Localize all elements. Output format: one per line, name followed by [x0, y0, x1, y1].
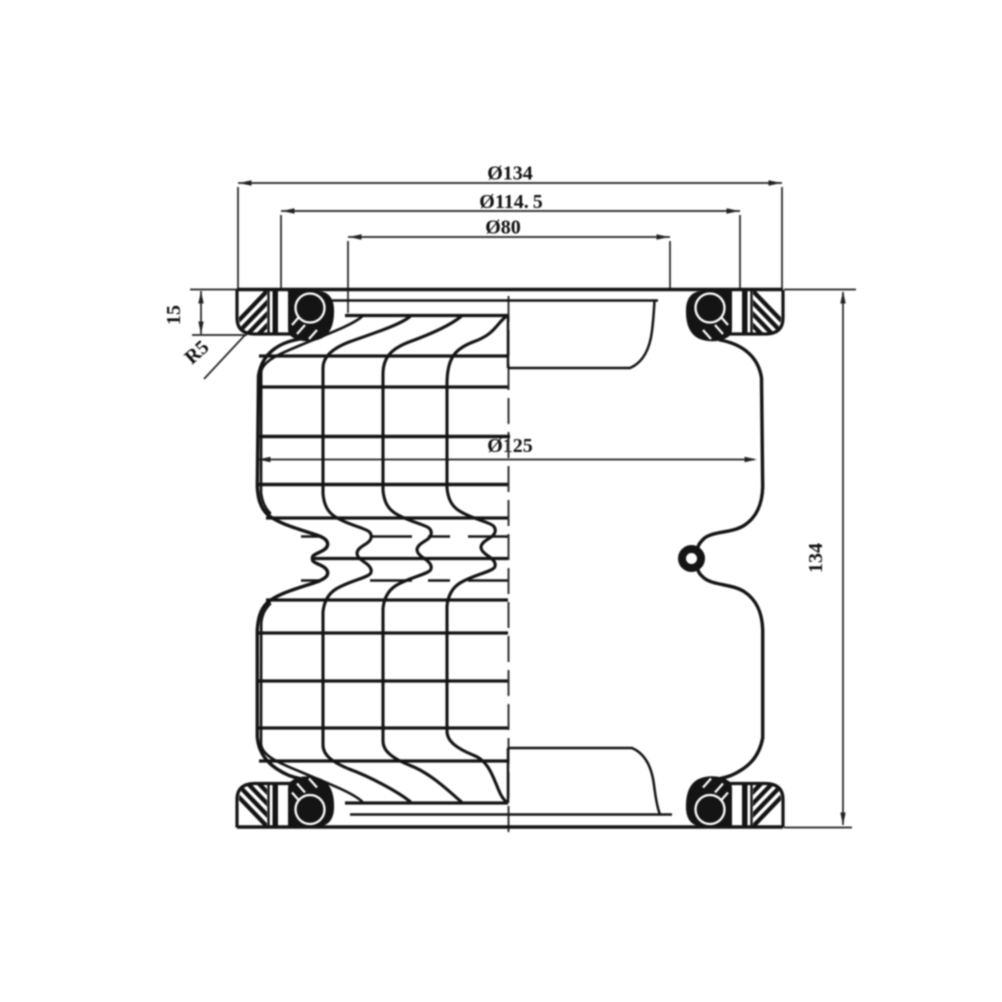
svg-text:Ø125: Ø125 [487, 435, 533, 457]
svg-text:Ø134: Ø134 [487, 163, 533, 185]
svg-text:15: 15 [163, 305, 185, 325]
svg-text:Ø114. 5: Ø114. 5 [479, 191, 542, 213]
svg-text:Ø80: Ø80 [485, 217, 521, 239]
svg-text:134: 134 [805, 543, 827, 573]
